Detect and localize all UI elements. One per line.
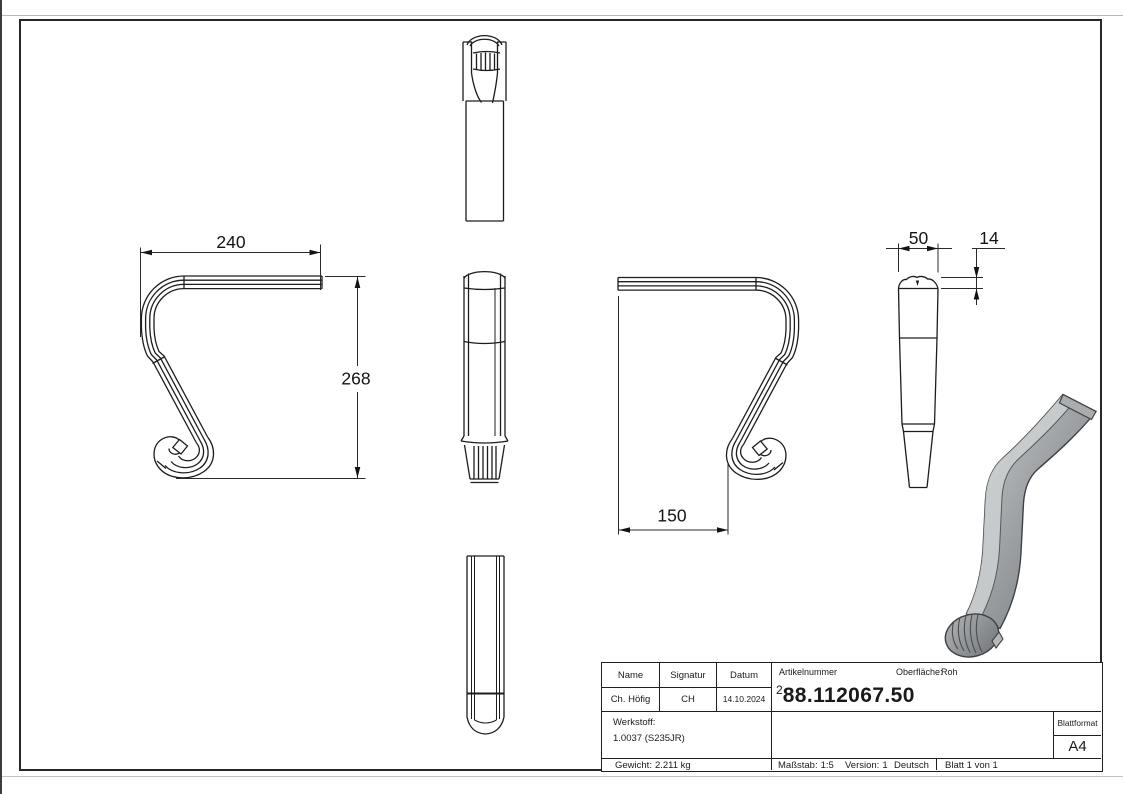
- weight-label: Gewicht:: [615, 760, 652, 771]
- dim-arrow-right: [717, 527, 728, 533]
- name-header: Name: [602, 663, 659, 687]
- language-value: Deutsch: [894, 760, 929, 771]
- article-number-label: Artikelnummer: [779, 667, 837, 677]
- dim-arrow-left: [141, 250, 152, 256]
- side-view-right-mirrored: [618, 278, 799, 480]
- titleblock-line: [602, 711, 1101, 712]
- title-block: Name Signatur Datum Ch. Höfig CH 14.10.2…: [601, 662, 1103, 772]
- weight-value: 2.211 kg: [655, 760, 691, 771]
- scale-label: Maßstab:: [778, 760, 818, 771]
- article-number-superscript: 2: [776, 683, 783, 697]
- article-number: 288.112067.50: [776, 683, 915, 708]
- dimension-50: 50: [886, 228, 952, 273]
- material-label: Werkstoff:: [613, 717, 655, 728]
- bottom-view: [467, 556, 504, 734]
- signature-value: CH: [660, 687, 716, 711]
- article-number-value: 88.112067.50: [783, 684, 915, 707]
- name-value: Ch. Höfig: [602, 687, 659, 711]
- version-value: 1: [882, 760, 887, 771]
- dimension-14-label: 14: [979, 228, 999, 248]
- dim-arrow-down: [974, 267, 980, 278]
- surface-value: Roh: [941, 667, 958, 677]
- weight-field: Gewicht:2.211 kg: [615, 760, 694, 771]
- version-field: Version:1: [845, 760, 891, 771]
- profile-view-right: [899, 276, 939, 487]
- dimension-150: 150: [619, 296, 729, 535]
- dim-arrow-left: [619, 527, 630, 533]
- version-label: Version:: [845, 760, 879, 771]
- dimension-268-label: 268: [341, 369, 370, 389]
- scale-value: 1:5: [821, 760, 834, 771]
- dim-arrow-down: [355, 467, 361, 478]
- dim-arrow-up: [974, 289, 980, 300]
- sheet-format-label: Blattformat: [1054, 711, 1101, 735]
- dimension-268: 268: [176, 277, 371, 479]
- dim-arrow-right: [310, 250, 321, 256]
- titleblock-line: [771, 663, 772, 770]
- sheet-format-value: A4: [1054, 735, 1101, 758]
- dimension-14: 14: [941, 228, 1005, 305]
- signature-header: Signatur: [660, 663, 716, 687]
- drawing-page: 240 268 150 50: [0, 0, 1123, 794]
- material-value: 1.0037 (S235JR): [613, 733, 685, 744]
- surface-label: Oberfläche:: [896, 667, 943, 677]
- titleblock-line: [936, 758, 937, 770]
- dimension-150-label: 150: [657, 506, 686, 526]
- dim-arrow-right: [927, 246, 938, 252]
- front-view: [461, 272, 508, 483]
- top-view: [463, 36, 506, 221]
- dimension-240-label: 240: [216, 232, 245, 252]
- dim-arrow-up: [355, 277, 361, 288]
- isometric-3d-view: [940, 395, 1096, 663]
- side-view-left: [141, 276, 322, 478]
- date-header: Datum: [717, 663, 771, 687]
- sheet-info: Blatt 1 von 1: [945, 760, 998, 771]
- dimension-50-label: 50: [909, 228, 929, 248]
- scale-field: Maßstab:1:5: [778, 760, 837, 771]
- date-value: 14.10.2024: [717, 687, 771, 711]
